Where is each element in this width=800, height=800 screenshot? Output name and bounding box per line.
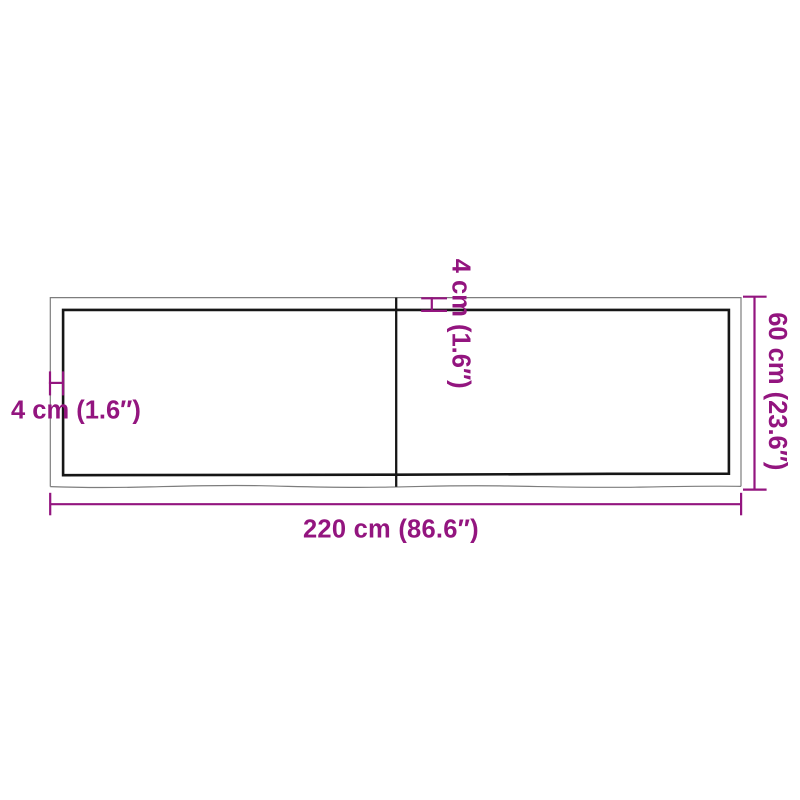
svg-text:220 cm (86.6″): 220 cm (86.6″) bbox=[303, 516, 479, 544]
svg-text:60 cm (23.6″): 60 cm (23.6″) bbox=[763, 312, 791, 470]
svg-text:4 cm (1.6″): 4 cm (1.6″) bbox=[11, 396, 141, 424]
svg-text:4 cm (1.6″): 4 cm (1.6″) bbox=[447, 259, 475, 389]
